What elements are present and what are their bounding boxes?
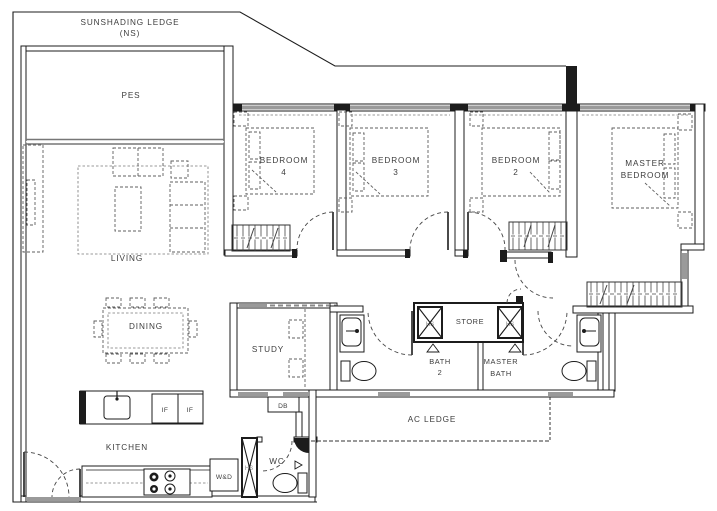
svg-text:3: 3 xyxy=(393,168,398,177)
wardrobe-icon xyxy=(587,282,682,307)
bath2-door xyxy=(368,311,412,355)
svg-text:BATH: BATH xyxy=(490,369,512,378)
rug xyxy=(78,166,208,254)
desk-chair-icon xyxy=(289,359,303,377)
heater-master-icon: HS xyxy=(498,307,522,338)
living-furniture xyxy=(23,145,208,254)
floorplan-drawing: HS HS xyxy=(0,0,717,511)
desk-chair-icon xyxy=(289,320,303,338)
svg-text:2: 2 xyxy=(438,368,443,377)
window-master xyxy=(580,106,690,110)
sofa-icon xyxy=(113,148,205,252)
study-furniture xyxy=(289,309,305,389)
window-bedroom2 xyxy=(468,106,562,110)
floorplan-page: HS HS xyxy=(0,0,717,511)
room-label-living: LIVING xyxy=(111,254,143,263)
wc-door xyxy=(262,441,292,471)
outer-boundary xyxy=(13,12,566,502)
label-if-right: IF xyxy=(187,407,193,414)
room-label-dining: DINING xyxy=(129,322,163,331)
heater-kitchen-icon: HS xyxy=(242,438,257,497)
label-if-left: IF xyxy=(162,407,168,414)
room-label-pes: PES xyxy=(121,91,140,100)
room-label-bedroom4: BEDROOM xyxy=(260,156,309,165)
shower-point-icon xyxy=(295,461,302,469)
pes-sliding-door xyxy=(26,140,224,145)
room-label-study: STUDY xyxy=(252,345,284,354)
walls xyxy=(21,46,705,502)
toilet-icon xyxy=(562,361,596,381)
svg-text:BEDROOM: BEDROOM xyxy=(621,171,670,180)
label-sunshading-ns: (NS) xyxy=(120,29,140,38)
window-master-side xyxy=(682,253,687,279)
store-block: HS HS xyxy=(414,303,523,352)
window-bedroom3 xyxy=(350,106,450,110)
svg-text:4: 4 xyxy=(281,168,286,177)
heater-bath2-icon: HS xyxy=(418,307,442,338)
room-label-store: STORE xyxy=(456,317,484,326)
room-label-kitchen: KITCHEN xyxy=(106,443,148,452)
entrance-threshold xyxy=(26,497,80,501)
room-label-master-bedroom: MASTER xyxy=(625,159,665,168)
corner-shower-icon xyxy=(294,438,309,453)
hallway-door xyxy=(515,260,553,298)
window-bedroom4 xyxy=(242,106,334,110)
kitchen-island xyxy=(79,391,203,424)
room-label-bedroom2: BEDROOM xyxy=(492,156,541,165)
label-washer-dryer: W&D xyxy=(216,474,232,481)
wardrobe-icon xyxy=(509,222,567,250)
room-label-wc: WC xyxy=(269,457,284,466)
sink-icon xyxy=(340,315,364,352)
label-db: DB xyxy=(278,403,288,410)
label-ac-ledge: AC LEDGE xyxy=(408,415,457,424)
entrance-door xyxy=(24,452,80,497)
label-sunshading-ledge: SUNSHADING LEDGE xyxy=(80,18,179,27)
bedroom2-door xyxy=(468,212,505,250)
shower-point-icon xyxy=(427,344,439,352)
room-label-bedroom3: BEDROOM xyxy=(372,156,421,165)
room-label-bath2: BATH xyxy=(429,357,451,366)
toilet-icon xyxy=(341,361,376,381)
toilet-icon xyxy=(273,473,307,493)
bedroom3-door xyxy=(410,212,448,250)
shower-point-icon xyxy=(509,344,521,352)
room-label-master-bath: MASTER xyxy=(484,357,518,366)
sink-icon xyxy=(577,315,601,352)
stove-icon xyxy=(144,469,190,495)
kitchen-counter xyxy=(82,466,212,497)
coffee-table-icon xyxy=(115,187,141,231)
svg-text:2: 2 xyxy=(513,168,518,177)
master-bath-door xyxy=(523,311,567,355)
wardrobe-icon xyxy=(232,225,290,251)
bedroom4-door xyxy=(297,212,333,250)
